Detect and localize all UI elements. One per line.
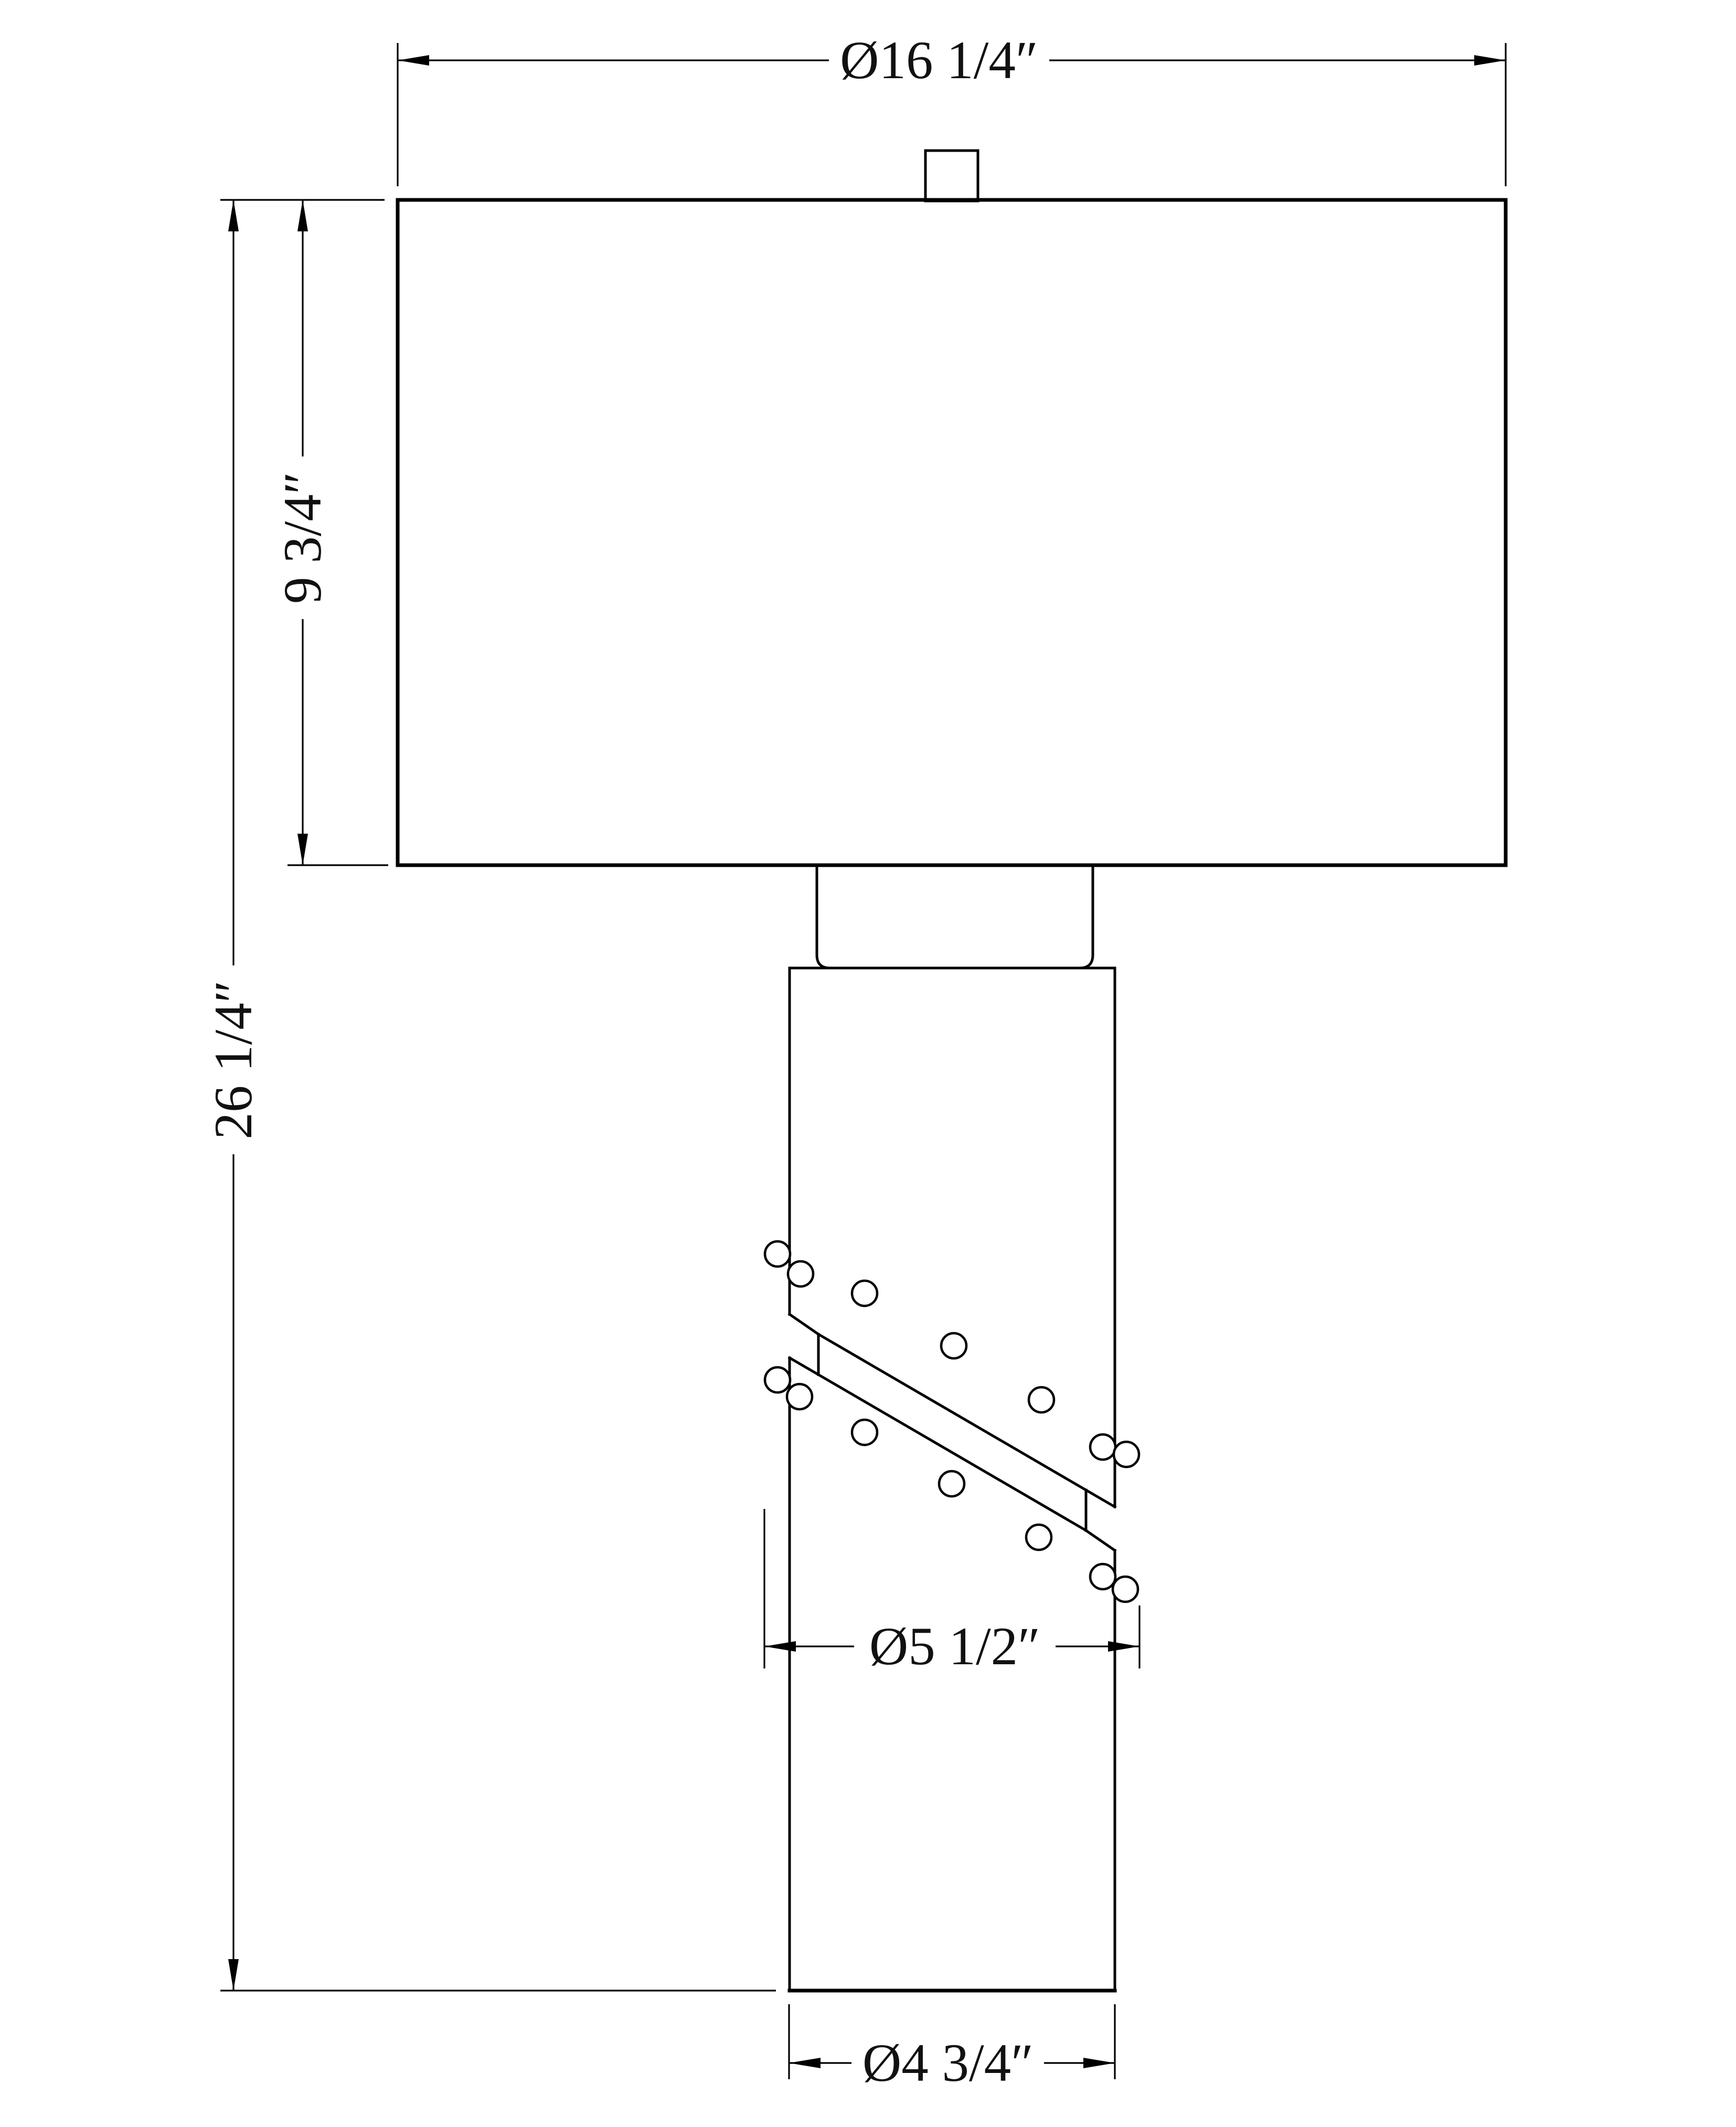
bead <box>765 1367 790 1392</box>
bead <box>1114 1442 1139 1467</box>
dimension-label-base-diameter: Ø4 3/4″ <box>862 2033 1034 2093</box>
lamp-outline <box>398 151 1506 1991</box>
band-wrap-left-top <box>790 1314 818 1334</box>
dimension-label-total-height: 26 1/4″ <box>204 980 263 1139</box>
bead-row-lower <box>765 1367 1138 1602</box>
bead-row-upper <box>765 1241 1139 1467</box>
bead <box>852 1420 877 1445</box>
dimension-arrowhead <box>398 55 429 66</box>
dimension-arrowhead <box>789 2058 821 2068</box>
bead <box>939 1471 964 1496</box>
dim-base-diameter: Ø4 3/4″ <box>789 2004 1115 2093</box>
dimension-arrowhead <box>1083 2058 1115 2068</box>
dimension-label-band-diameter: Ø5 1/2″ <box>869 1616 1040 1676</box>
bead <box>787 1384 812 1409</box>
bead <box>1029 1387 1054 1412</box>
shade-outline <box>398 200 1506 865</box>
dimension-arrowhead <box>228 1959 239 1991</box>
dimension-arrowhead <box>297 200 308 231</box>
bead <box>1113 1577 1138 1602</box>
bead <box>1090 1564 1115 1589</box>
dimension-arrowhead <box>764 1641 796 1652</box>
bead <box>788 1261 813 1286</box>
lamp-dimension-drawing: Ø16 1/4″ 26 1/4″ 9 3/4″ Ø5 1/2″ <box>0 0 1736 2127</box>
bead <box>1090 1434 1115 1460</box>
bead <box>1026 1525 1051 1550</box>
band-wrap-right-bottom <box>1086 1530 1115 1550</box>
dimension-label-shade-diameter: Ø16 1/4″ <box>840 30 1038 90</box>
dim-shade-height: 9 3/4″ <box>273 200 388 865</box>
dimension-arrowhead <box>228 200 239 231</box>
band-wrap-right-top <box>1086 1490 1115 1507</box>
bead <box>852 1281 877 1306</box>
bead <box>941 1333 966 1358</box>
finial-outline <box>925 151 978 201</box>
dimension-arrowhead <box>297 834 308 865</box>
band-wrap-left-bottom <box>790 1358 818 1375</box>
drawing-sheet: Ø16 1/4″ 26 1/4″ 9 3/4″ Ø5 1/2″ <box>0 0 1736 2127</box>
dim-shade-diameter: Ø16 1/4″ <box>398 30 1506 186</box>
dim-band-diameter: Ø5 1/2″ <box>764 1509 1139 1676</box>
dimension-label-shade-height: 9 3/4″ <box>273 472 333 604</box>
bead <box>765 1241 790 1267</box>
dimension-arrowhead <box>1108 1641 1139 1652</box>
dim-total-height: 26 1/4″ <box>204 200 776 1991</box>
dimension-arrowhead <box>1474 55 1506 66</box>
neck-outline <box>817 865 1093 968</box>
